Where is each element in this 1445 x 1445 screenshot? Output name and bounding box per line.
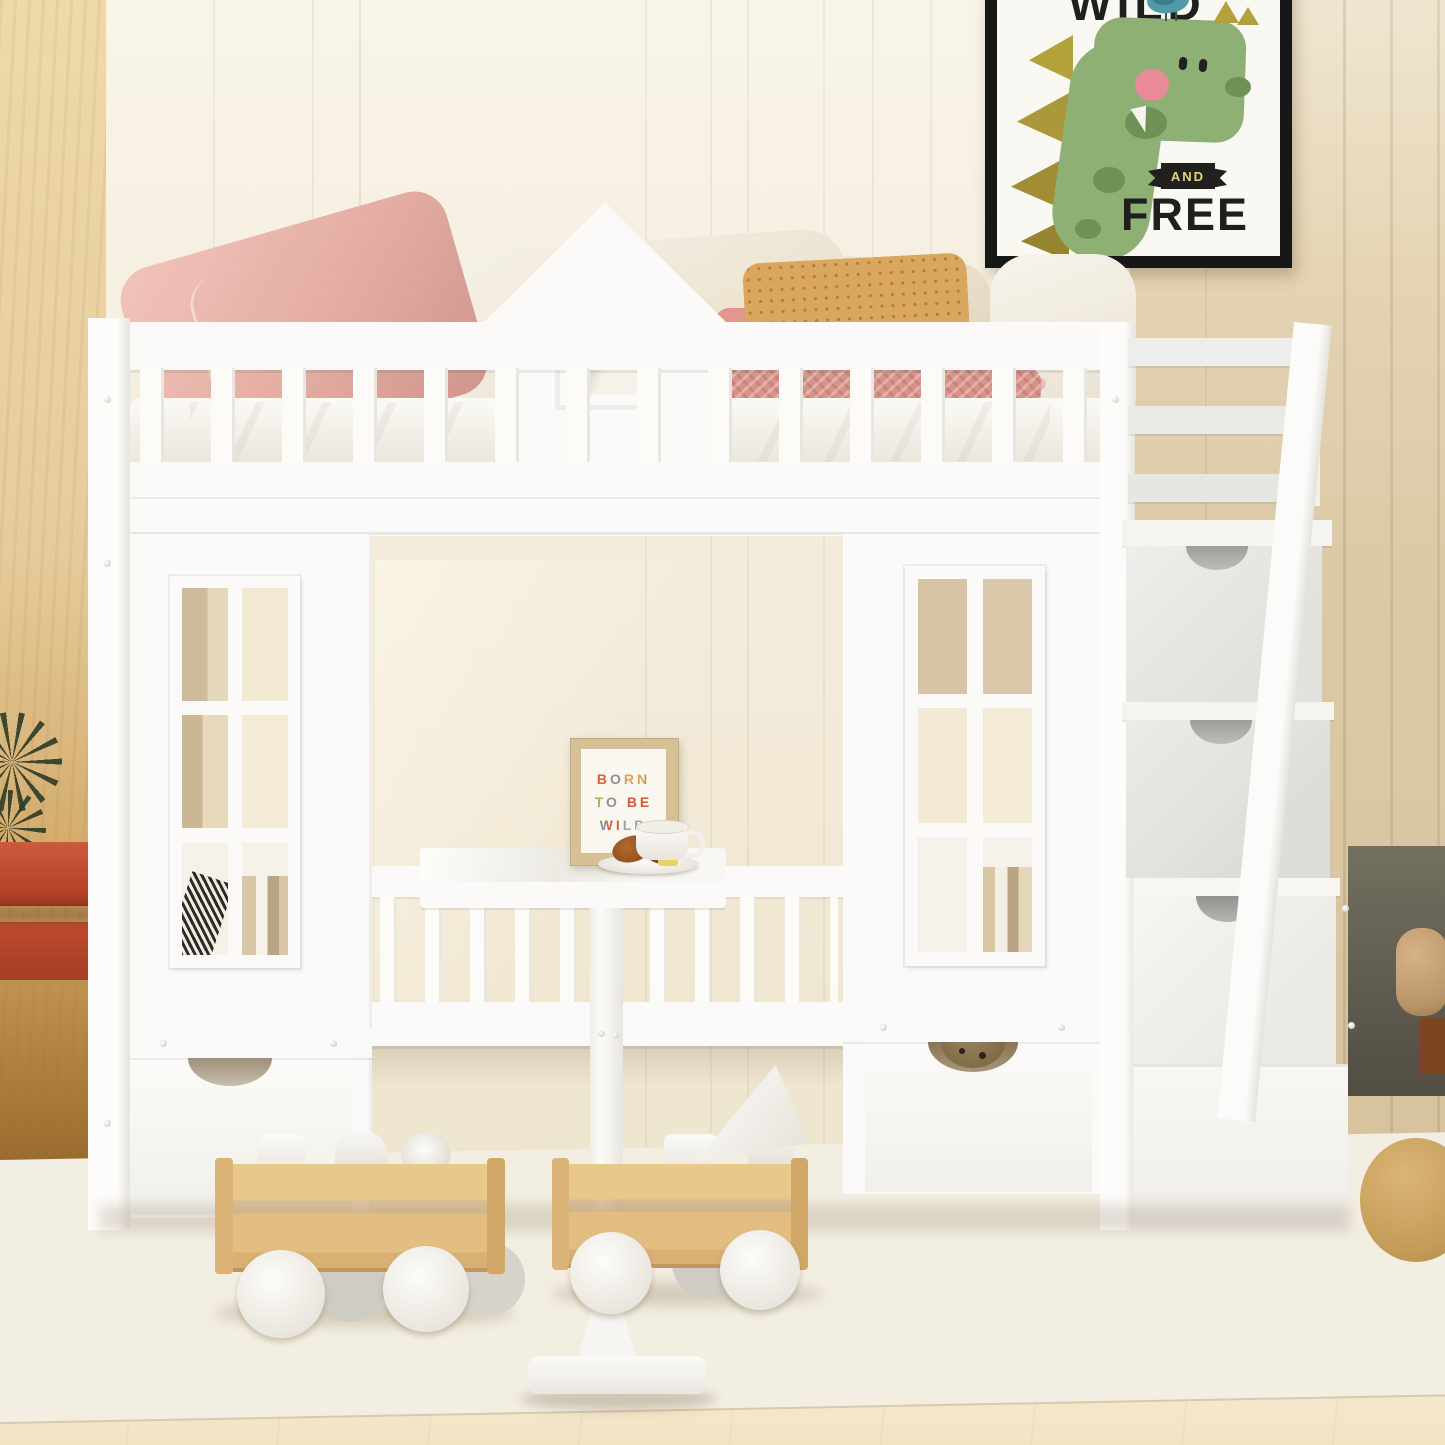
window-pane xyxy=(242,588,288,701)
post-screw xyxy=(1112,396,1119,403)
wheel-front xyxy=(720,1230,800,1310)
window-pane xyxy=(918,837,967,952)
coffee-cup-rim xyxy=(636,820,690,834)
rail-screw xyxy=(160,1040,167,1047)
window-pane xyxy=(242,715,288,828)
toy-wagon-2 xyxy=(552,1072,808,1304)
print-line-2: TO BE xyxy=(581,794,666,810)
dino-head xyxy=(1091,16,1247,143)
dino-spike xyxy=(1029,35,1073,81)
left-window-frame xyxy=(170,576,300,968)
pane-view-stripes xyxy=(983,867,1032,952)
teddy-bear xyxy=(1396,928,1445,1016)
room-scene: WILD AND FREE xyxy=(0,0,1445,1445)
teddy-eye xyxy=(979,1052,986,1059)
crate-post xyxy=(487,1158,505,1274)
patterned-cushion xyxy=(182,871,228,955)
wheel-front xyxy=(383,1246,469,1332)
print-line-1: BORN xyxy=(581,771,666,787)
window-pane xyxy=(182,588,228,701)
stair-step-edge xyxy=(1133,878,1340,896)
window-pane xyxy=(242,842,288,955)
stringer-screw xyxy=(1342,905,1349,912)
toy-wagon-1 xyxy=(215,1128,505,1328)
window-pane xyxy=(182,842,228,955)
teddy-in-drawer xyxy=(941,1042,1005,1068)
post-screw xyxy=(104,1120,111,1127)
poster-word-free: FREE xyxy=(1105,189,1265,241)
window-pane xyxy=(983,579,1032,694)
bed-post-left xyxy=(88,318,130,1230)
crate-post xyxy=(215,1158,233,1274)
coffee-cup-handle xyxy=(684,830,705,858)
dino-head-spike xyxy=(1237,7,1259,25)
fascia-seam xyxy=(88,497,1135,499)
window-pane xyxy=(918,579,967,694)
dino-spot xyxy=(1125,107,1167,139)
wheel-front xyxy=(570,1232,652,1314)
rail-screw xyxy=(330,1040,337,1047)
banner-and: AND xyxy=(1161,163,1215,189)
column-screw xyxy=(598,1030,605,1037)
stringer-screw xyxy=(1348,1022,1355,1029)
stair-rail-bar xyxy=(1128,338,1312,366)
post-screw xyxy=(104,396,111,403)
pane-view-stripes xyxy=(918,867,967,952)
poster-word-and: AND xyxy=(1171,169,1205,184)
pedestal-table-apron xyxy=(420,882,726,908)
dino-cheek xyxy=(1135,69,1169,101)
rail-screw xyxy=(1058,1024,1065,1031)
rail-screw xyxy=(880,1024,887,1031)
window-pane xyxy=(983,708,1032,823)
dino-spike xyxy=(1017,93,1069,145)
bunk-rail-slats xyxy=(140,368,1092,464)
window-pane xyxy=(182,715,228,828)
window-pane xyxy=(918,708,967,823)
wood-stool-leg xyxy=(1420,1018,1445,1074)
bunk-rail-bottom-beam xyxy=(88,462,1135,536)
pedestal-foot xyxy=(528,1356,706,1394)
stair-beam xyxy=(1122,702,1334,720)
stair-drawer-2 xyxy=(1126,720,1330,878)
post-screw xyxy=(104,560,111,567)
teddy-eye xyxy=(959,1048,965,1054)
pane-view-stripes xyxy=(242,876,288,955)
wheel-front xyxy=(237,1250,325,1338)
window-pane xyxy=(983,837,1032,952)
right-window-frame xyxy=(905,566,1045,966)
bunk-rail-top-beam xyxy=(88,322,1135,370)
column-screw xyxy=(612,1032,619,1039)
crate-post xyxy=(552,1158,569,1270)
dino-spot xyxy=(1225,77,1251,97)
